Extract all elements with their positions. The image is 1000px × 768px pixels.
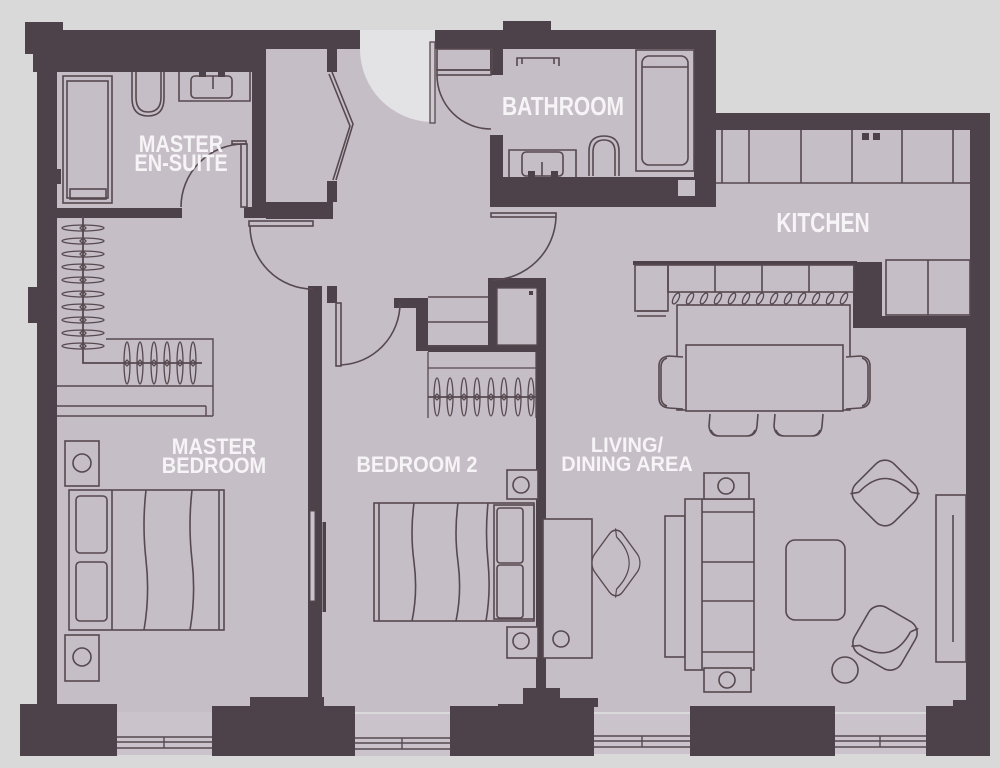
- svg-text:BATHROOM: BATHROOM: [502, 92, 624, 122]
- svg-text:BEDROOM: BEDROOM: [162, 454, 266, 478]
- svg-text:DINING AREA: DINING AREA: [561, 453, 693, 477]
- svg-text:BEDROOM 2: BEDROOM 2: [356, 453, 477, 477]
- svg-text:EN-SUITE: EN-SUITE: [134, 149, 227, 176]
- svg-text:KITCHEN: KITCHEN: [776, 208, 869, 238]
